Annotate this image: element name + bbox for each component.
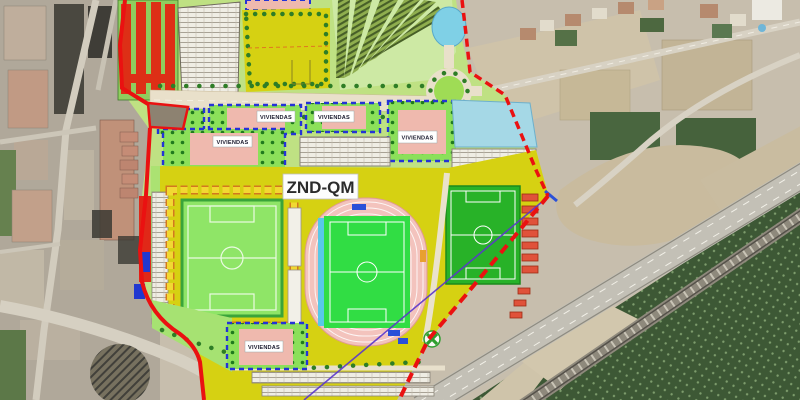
housing-label: VIVIENDAS xyxy=(314,111,354,122)
yellow-parcel-top xyxy=(242,8,330,92)
roof-row xyxy=(120,132,138,198)
housing-label-text: VIVIENDAS xyxy=(248,345,280,351)
zone-label: ZND-QM xyxy=(283,174,358,199)
housing-label-text: VIVIENDAS xyxy=(260,115,292,121)
zone-label-text: ZND-QM xyxy=(287,178,355,197)
housing-label: VIVIENDAS xyxy=(398,131,437,143)
housing-label-text: VIVIENDAS xyxy=(402,136,434,142)
housing-label: VIVIENDAS xyxy=(257,111,295,122)
track-blue-strip xyxy=(318,218,325,326)
housing-label: VIVIENDAS xyxy=(245,341,283,352)
housing-block-top xyxy=(246,0,310,10)
red-strip-blocks xyxy=(118,0,178,100)
housing-label: VIVIENDAS xyxy=(213,136,252,147)
housing-label-text: VIVIENDAS xyxy=(318,115,350,121)
plan-map: VIVIENDAS VIVIENDAS VIVIENDAS VIVIENDAS … xyxy=(0,0,800,400)
parking-area-top xyxy=(178,2,240,95)
pond xyxy=(432,7,466,47)
housing-label-text: VIVIENDAS xyxy=(217,140,249,146)
zoning-plan-screenshot: VIVIENDAS VIVIENDAS VIVIENDAS VIVIENDAS … xyxy=(0,0,800,400)
existing-building xyxy=(148,103,188,129)
